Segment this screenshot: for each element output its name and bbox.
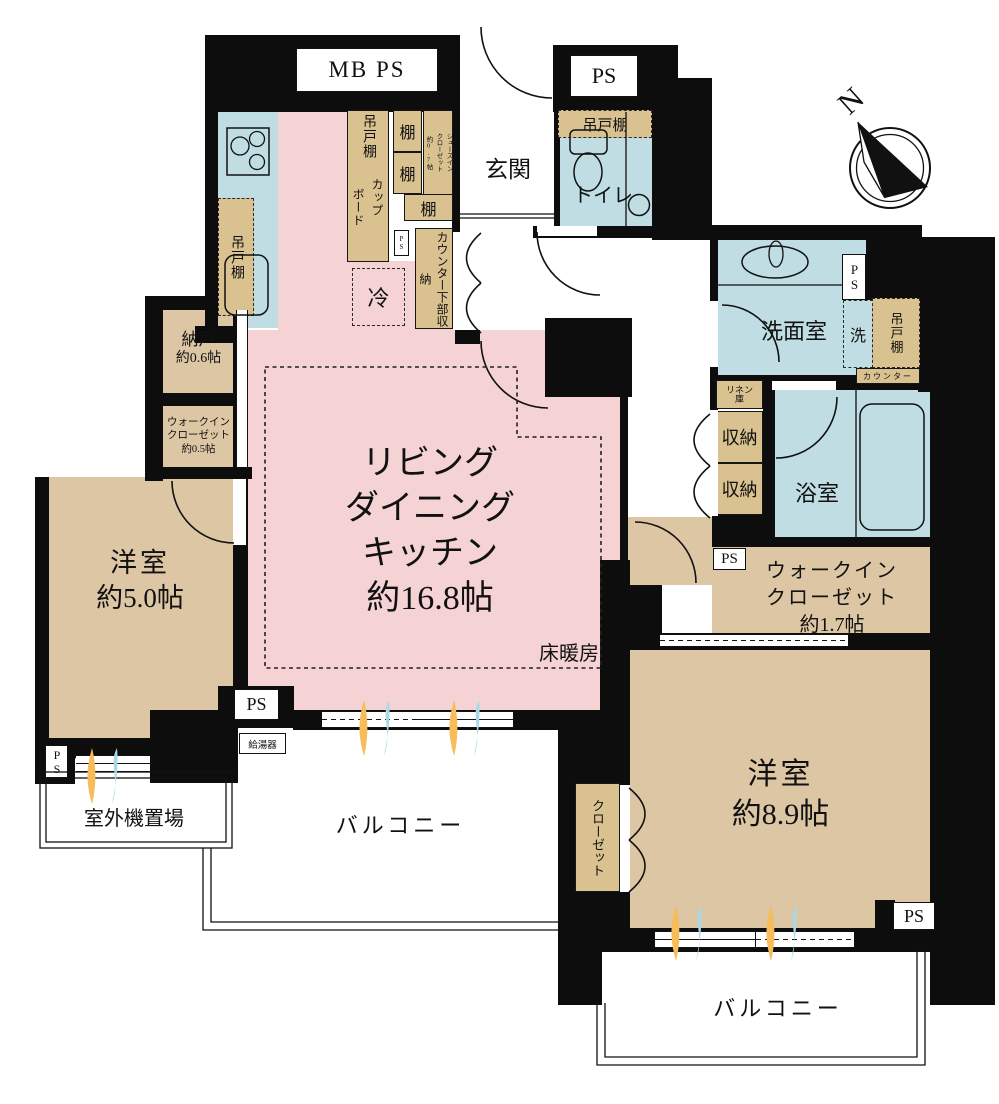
door-arc (537, 232, 600, 295)
window (322, 711, 417, 728)
shelf: 棚 (404, 194, 453, 221)
hanging-cupboard: 吊戸棚 (218, 198, 254, 316)
room-ldk-north (278, 112, 347, 331)
refrigerator: 冷 (352, 268, 405, 326)
shelf-label: 棚 (420, 196, 436, 220)
hanging-cupboard: 吊戸棚 (558, 110, 652, 138)
window (756, 931, 854, 948)
cupboard-label: ボード (350, 188, 367, 227)
ps-box: PS (45, 745, 68, 778)
ps-label: PS (246, 694, 266, 715)
label-bedroom5: 洋室 約5.0帖 (55, 543, 225, 619)
label-ldk: リビング ダイニング キッチン 約16.8帖 (292, 437, 568, 625)
window (655, 931, 755, 948)
hanging-cupboard: 吊戸棚 (872, 298, 920, 368)
storage-label: 収納 (722, 424, 758, 450)
label-balcony: バルコニー (328, 810, 473, 838)
ps-label: PS (721, 551, 738, 568)
window (417, 711, 513, 728)
label-outdoor-unit: 室外機置場 (64, 802, 204, 830)
room-bathroom (775, 390, 930, 538)
label-bathroom: 浴室 (784, 478, 850, 506)
linen-label: 庫 (735, 395, 744, 404)
ps-label: PS (592, 63, 616, 89)
balcony-outline (203, 848, 558, 930)
ps-label: PS (398, 235, 406, 251)
linen-storage: リネン 庫 (716, 380, 763, 409)
water-heater-box: 給湯器 (239, 733, 286, 754)
shoes-in-closet: シューズイン クローゼット 約0.7帖 (423, 110, 453, 195)
entrance-step-line (458, 214, 556, 218)
closet: クローゼット (575, 783, 620, 892)
counter: カウンター (856, 368, 920, 384)
shelf-label: 棚 (399, 119, 415, 143)
hanging-cupboard-label: 吊戸棚 (887, 312, 906, 354)
label-balcony: バルコニー (708, 993, 848, 1021)
refrigerator-label: 冷 (367, 281, 389, 313)
label-storeroom: 納戸 約0.6帖 (163, 322, 234, 376)
cupboard-label: カップ (369, 178, 386, 217)
label-wic17: ウォークイン クローゼット 約1.7帖 (742, 554, 922, 642)
hanging-cupboard-label: 吊戸棚 (582, 114, 627, 135)
window (76, 755, 150, 772)
compass-icon (850, 122, 930, 208)
label-entrance: 玄関 (462, 150, 554, 184)
label-washroom: 洗面室 (738, 316, 850, 344)
shoes-closet-label: シューズイン (443, 133, 453, 172)
shoes-closet-label: クローゼット (433, 133, 443, 172)
storage-label: 収納 (722, 476, 758, 502)
hanging-cupboard-label: 吊戸棚 (358, 114, 378, 159)
washer-label: 洗 (850, 322, 866, 346)
label-wic05: ウォークイン クローゼット 約0.5帖 (163, 410, 234, 462)
ps-label: PS (49, 748, 64, 776)
ps-box: PS (570, 55, 638, 97)
ps-box: PS (842, 254, 866, 300)
folding-door (694, 414, 710, 518)
floor-plan: 吊戸棚 吊戸棚 カップ ボード 棚 棚 シューズイン クローゼット 約0.7帖 … (0, 0, 999, 1104)
closet-label: クローゼット (588, 799, 607, 877)
ps-box: PS (234, 689, 279, 720)
mb-ps-box: MB PS (296, 48, 438, 92)
label-bedroom89: 洋室 約8.9帖 (693, 748, 868, 842)
compass-north-label: N (820, 70, 882, 132)
shoes-closet-label: 約0.7帖 (423, 136, 433, 170)
hanging-cupboard-label: 吊戸棚 (226, 235, 246, 280)
shelf-label: 棚 (399, 161, 415, 185)
counter-label: カウンター (863, 371, 913, 382)
storage-closet: 収納 (716, 411, 763, 463)
ps-box: PS (893, 902, 935, 930)
ps-label: PS (904, 906, 924, 927)
water-heater-label: 給湯器 (248, 737, 277, 751)
room-wic17-vestibule (628, 517, 712, 585)
folding-door (467, 233, 482, 333)
sliding-door (236, 310, 248, 467)
counter-lower-storage: カウンター下部収納 (415, 228, 453, 329)
shelf: 棚 (393, 110, 422, 152)
shelf: 棚 (393, 152, 422, 194)
storage-closet: 収納 (716, 463, 763, 515)
ps-box: PS (394, 230, 409, 256)
label-toilet: トイレ (560, 180, 646, 206)
mb-ps-label: MB PS (328, 57, 405, 83)
ps-label: PS (846, 262, 862, 292)
label-floor-heating: 床暖房 (525, 638, 613, 664)
counter-lower-storage-label: カウンター下部収納 (417, 229, 451, 328)
